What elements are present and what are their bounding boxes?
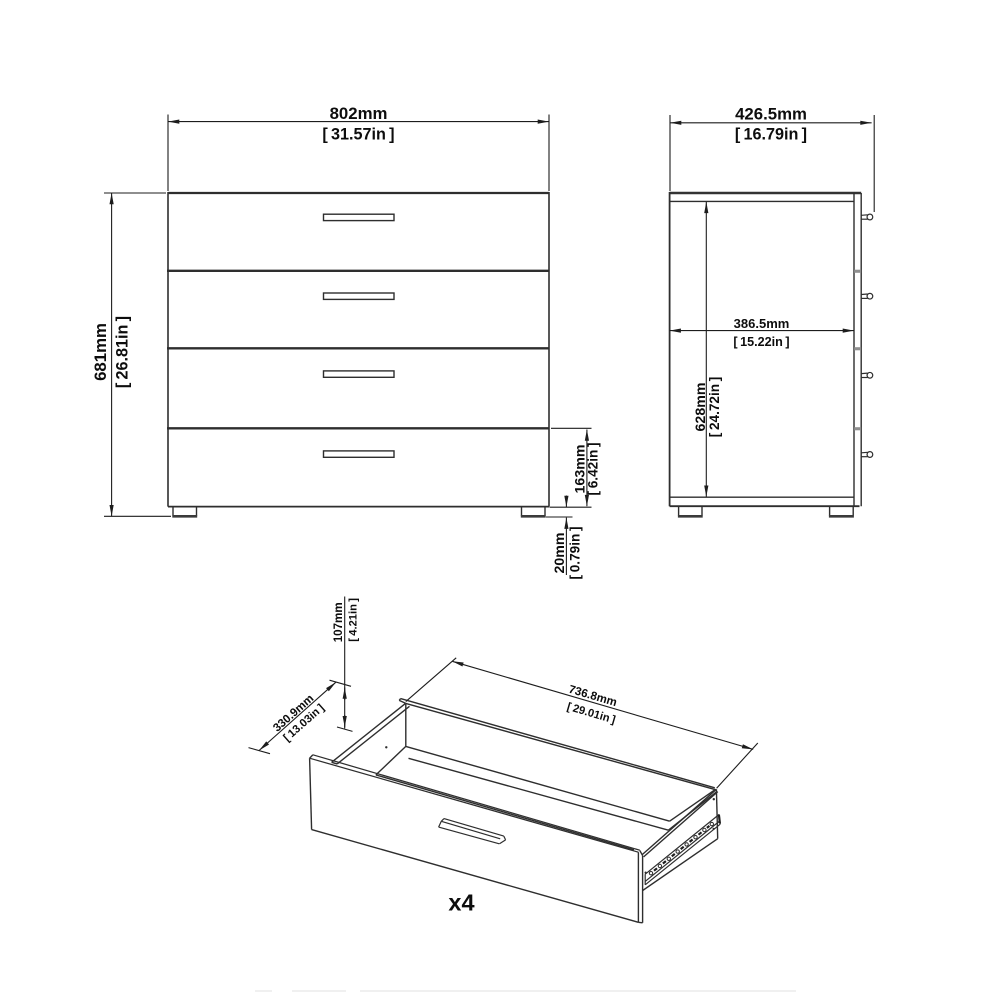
svg-text:[ 26.81in ]: [ 26.81in ] — [114, 316, 132, 388]
svg-text:[ 0.79in ]: [ 0.79in ] — [567, 526, 582, 579]
svg-text:[ 15.22in ]: [ 15.22in ] — [733, 335, 789, 349]
svg-text:107mm: 107mm — [332, 602, 345, 642]
svg-text:681mm: 681mm — [91, 323, 110, 381]
svg-text:[ 16.79in ]: [ 16.79in ] — [735, 126, 807, 144]
svg-text:386.5mm: 386.5mm — [734, 316, 790, 331]
svg-text:[ 4.21in ]: [ 4.21in ] — [348, 598, 360, 642]
svg-text:426.5mm: 426.5mm — [735, 104, 807, 123]
svg-text:[ 31.57in ]: [ 31.57in ] — [322, 126, 394, 144]
svg-text:20mm: 20mm — [552, 532, 568, 573]
svg-text:[ 24.72in ]: [ 24.72in ] — [707, 377, 722, 438]
svg-text:[ 6.42in ]: [ 6.42in ] — [586, 442, 601, 495]
svg-text:802mm: 802mm — [330, 104, 388, 123]
svg-text:x4: x4 — [448, 889, 474, 915]
